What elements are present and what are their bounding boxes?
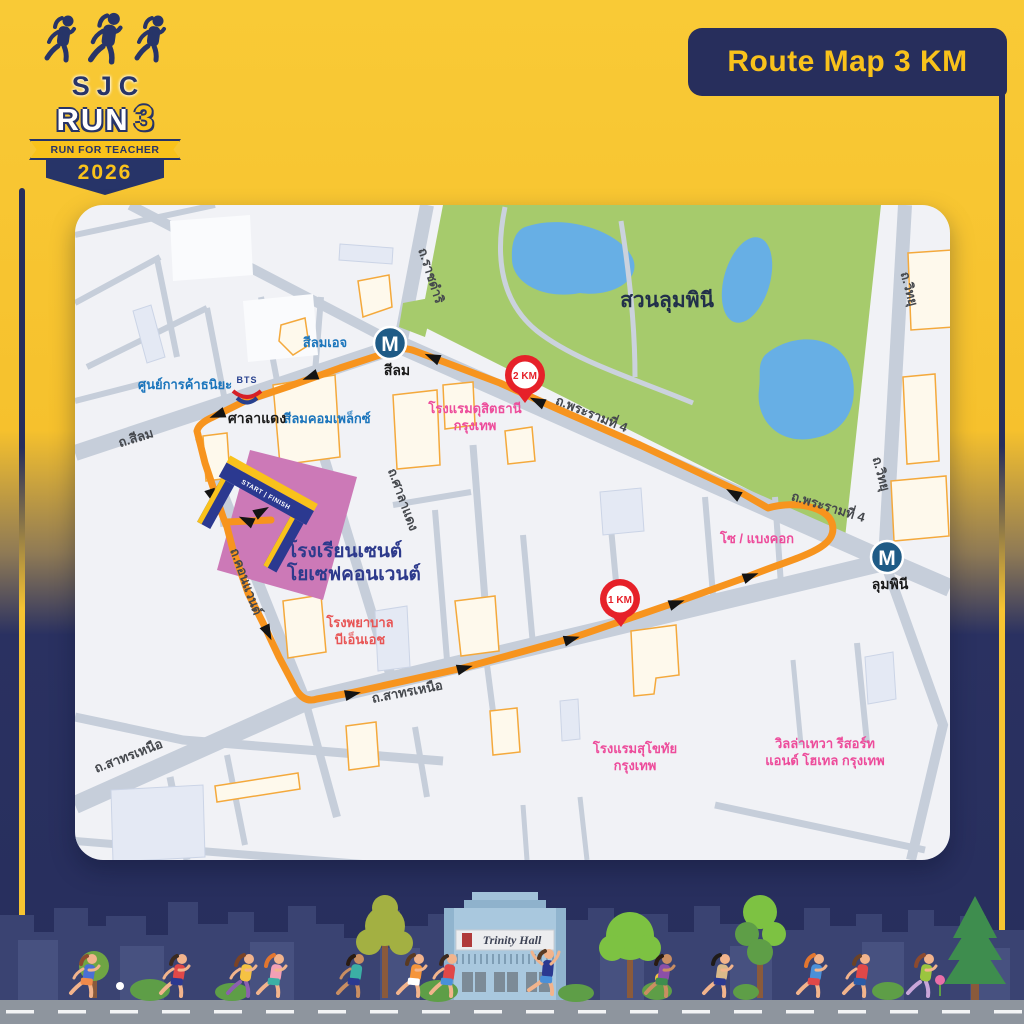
logo-year-shield: 2026 <box>46 159 164 195</box>
park-pond-3 <box>759 339 854 439</box>
route-title: Route Map 3 KM <box>727 45 967 79</box>
park-label: สวนลุมพินี <box>620 288 715 314</box>
logo-run-line: RUN 3 <box>16 101 194 136</box>
mrt-lumpini-symbol: M <box>878 547 896 570</box>
bnh-label-2: บีเอ็นเอช <box>335 630 386 647</box>
school-label-1: โรงเรียนเซนต์ <box>286 539 402 562</box>
map-card: START | FINISH ถ.สีลม ถ.ราชดำริ ถ.วิทยุ … <box>75 205 950 860</box>
logo-acronym: SJC <box>23 73 194 100</box>
sukhothai-label-1: โรงแรมสุโขทัย <box>592 740 677 757</box>
poster: SJC RUN 3 RUN FOR TEACHER 2026 Route Map… <box>0 0 1024 1024</box>
so-bangkok-label: โซ / แบงคอก <box>719 530 794 546</box>
bts-logo-text: BTS <box>237 375 258 385</box>
logo-run-word: RUN <box>56 102 129 137</box>
trinity-hall-sign: Trinity Hall <box>483 933 542 947</box>
silom-complex-label: สีลมคอมเพล็กซ์ <box>283 409 370 426</box>
logo-year: 2026 <box>78 161 133 185</box>
logo-tagline-ribbon: RUN FOR TEACHER <box>29 139 181 160</box>
km1-label: 1 KM <box>608 595 632 606</box>
building-crest <box>462 933 472 947</box>
mrt-silom-label: สีลม <box>383 362 410 378</box>
bts-saladaeng-label: ศาลาแดง <box>228 410 286 426</box>
villa-label-1: วิลล่าเทวา รีสอร์ท <box>774 736 875 751</box>
dusit-label-1: โรงแรมดุสิตธานี <box>427 400 521 417</box>
dusit-label-2: กรุงเทพ <box>454 418 497 434</box>
sukhothai-label-2: กรุงเทพ <box>614 758 657 774</box>
km2-label: 2 KM <box>513 371 537 382</box>
trinity-hall-building: Trinity Hall <box>444 892 566 1000</box>
logo-runners-icon <box>16 10 194 68</box>
bnh-label-1: โรงพยาบาล <box>325 614 393 630</box>
villa-label-2: แอนด์ โฮเทล กรุงเทพ <box>765 752 884 769</box>
mrt-lumpini-label: ลุมพินี <box>872 576 909 593</box>
footer-road <box>0 1000 1024 1024</box>
logo-tagline: RUN FOR TEACHER <box>51 144 160 156</box>
logo-run-number: 3 <box>134 99 153 138</box>
footer-illustration: Trinity Hall <box>0 880 1024 1024</box>
school-label-2: โยเซฟคอนเวนต์ <box>286 562 421 585</box>
route-title-badge: Route Map 3 KM <box>688 28 1007 96</box>
silom-edge-label: สีลมเอจ <box>303 335 347 350</box>
left-accent-line <box>19 188 25 1000</box>
thaniya-label: ศูนย์การค้าธนิยะ <box>138 377 232 393</box>
mrt-silom-symbol: M <box>381 333 399 356</box>
right-accent-line <box>999 92 1005 1000</box>
route-map: START | FINISH ถ.สีลม ถ.ราชดำริ ถ.วิทยุ … <box>75 205 950 860</box>
event-logo: SJC RUN 3 RUN FOR TEACHER 2026 <box>16 10 194 195</box>
